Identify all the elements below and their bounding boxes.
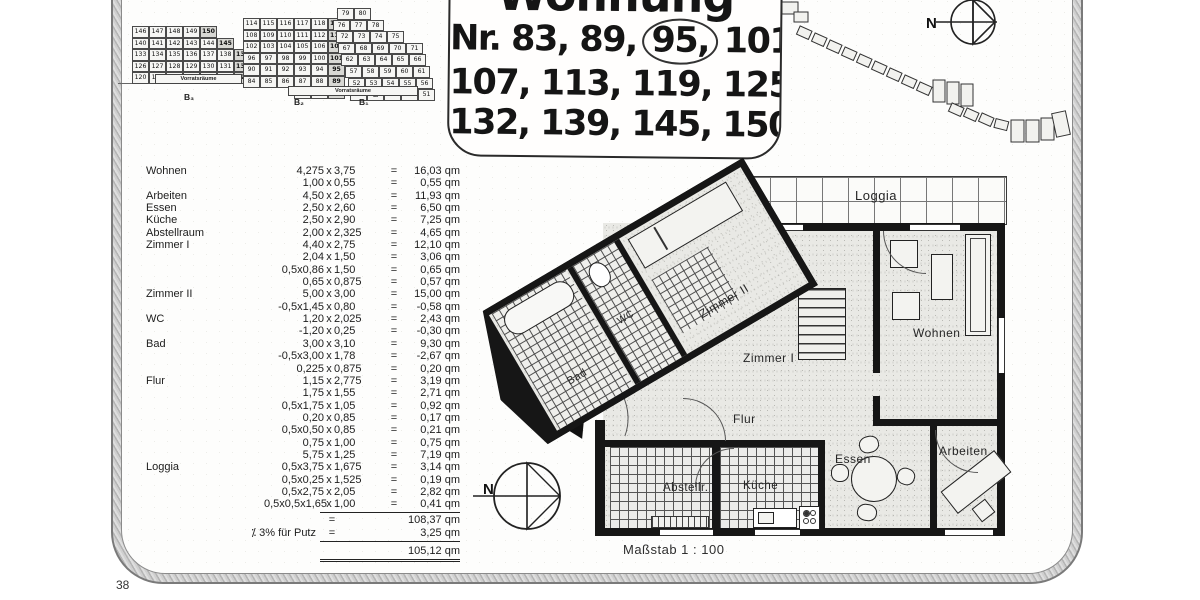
dimension-b: 2,75 <box>334 239 384 251</box>
unit-number-cell: 60 <box>396 66 413 78</box>
times-sign: x <box>324 474 334 486</box>
bed <box>628 182 743 269</box>
page-number: 38 <box>116 578 129 592</box>
label-loggia: Loggia <box>855 188 897 203</box>
times-sign: x <box>324 461 334 473</box>
dimension-b: 1,55 <box>334 387 384 399</box>
measurement-row: 0,75 x 1,00 = 0,75 qm <box>146 437 460 449</box>
unit-number-cell: 109 <box>260 30 277 42</box>
equals-sign: = <box>384 227 404 239</box>
unit-number-cell: 136 <box>183 49 200 61</box>
dimension-b: 3,75 <box>334 165 384 177</box>
times-sign: x <box>324 338 334 350</box>
dimension-a: 0,20 <box>264 412 324 424</box>
measurement-row: 0,5x1,75 x 1,05 = 0,92 qm <box>146 400 460 412</box>
measurement-row: 1,00 x 0,55 = 0,55 qm <box>146 177 460 189</box>
dimension-b: 2,05 <box>334 486 384 498</box>
area-value: 0,20 qm <box>404 363 460 375</box>
unit-number-cell: 129 <box>183 61 200 73</box>
area-value: 0,19 qm <box>404 474 460 486</box>
unit-number-cell: 116 <box>277 18 294 30</box>
measurement-row: Küche 2,50 x 2,90 = 7,25 qm <box>146 214 460 226</box>
measurement-row: Wohnen 4,275 x 3,75 = 16,03 qm <box>146 165 460 177</box>
unit-number-cell: 141 <box>149 38 166 50</box>
dimension-b: 2,65 <box>334 190 384 202</box>
times-sign: x <box>324 350 334 362</box>
unit-number-cell: 69 <box>372 43 389 55</box>
measurement-row: Bad 3,00 x 3,10 = 9,30 qm <box>146 338 460 350</box>
unit-number-cell: 102 <box>243 41 260 53</box>
dimension-a: 2,00 <box>264 227 324 239</box>
dimension-b: 2,60 <box>334 202 384 214</box>
label-essen: Essen <box>835 452 871 466</box>
armchair <box>892 292 920 320</box>
unit-number-cell: 72 <box>336 31 353 43</box>
unit-number-cell: 58 <box>362 66 379 78</box>
equals-sign: = <box>384 424 404 436</box>
stove-burner <box>810 518 816 524</box>
shelf-inner <box>970 238 986 332</box>
unit-number-cell: 130 <box>200 61 217 73</box>
measurement-row: 0,225 x 0,875 = 0,20 qm <box>146 363 460 375</box>
unit-number-cell: 126 <box>132 61 149 73</box>
room-label: Wohnen <box>146 165 264 177</box>
window-bottom-1 <box>660 529 713 536</box>
stove-burner <box>803 510 810 517</box>
label-abstell: Abstellr. <box>663 482 708 494</box>
dimension-b: 1,525 <box>334 474 384 486</box>
equals-sign: = <box>384 400 404 412</box>
window-bottom-2 <box>755 529 800 536</box>
measurement-row: 5,75 x 1,25 = 7,19 qm <box>146 449 460 461</box>
room-label: Flur <box>146 375 264 387</box>
times-sign: x <box>324 437 334 449</box>
north-label-top: N <box>926 15 937 32</box>
unit-number-cell: 117 <box>294 18 311 30</box>
unit-number-cell: 63 <box>358 54 375 66</box>
times-sign: x <box>324 214 334 226</box>
title-line-1: Nr. 83, 89, 95, 101, <box>450 16 780 65</box>
equals-sign: = <box>384 461 404 473</box>
room-label <box>146 387 264 399</box>
block-label-b1: B₁ <box>359 97 369 107</box>
unit-number-cell: 144 <box>200 38 217 50</box>
times-sign: x <box>324 190 334 202</box>
area-value: 16,03 qm <box>404 165 460 177</box>
stove-burner <box>803 518 809 524</box>
plaster-deduction-value: 3,25 qm <box>344 527 460 539</box>
times-sign: x <box>324 375 334 387</box>
room-label: Zimmer II <box>146 288 264 300</box>
times-sign: x <box>324 412 334 424</box>
unit-number-cell: 118 <box>311 18 328 30</box>
window-right <box>998 318 1005 373</box>
area-value: 2,43 qm <box>404 313 460 325</box>
siteplan-row: 96979899100101 <box>243 53 345 65</box>
equals-sign: = <box>320 514 344 526</box>
measurement-row: 1,75 x 1,55 = 2,71 qm <box>146 387 460 399</box>
room-label: Arbeiten <box>146 190 264 202</box>
label-zimmer1: Zimmer I <box>743 351 794 365</box>
unit-number-cell: 59 <box>379 66 396 78</box>
area-value: 2,71 qm <box>404 387 460 399</box>
room-label <box>146 474 264 486</box>
window-top-2 <box>910 224 960 231</box>
room-label <box>146 251 264 263</box>
measurement-row: Loggia 0,5x3,75 x 1,675 = 3,14 qm <box>146 461 460 473</box>
dimension-a: 3,00 <box>264 338 324 350</box>
storage-rooms-strip-left: Vorratsräume <box>155 74 242 84</box>
room-label: Zimmer I <box>146 239 264 251</box>
unit-number-cell: 85 <box>260 76 277 88</box>
unit-number-cell: 146 <box>132 26 149 38</box>
room-label <box>146 276 264 288</box>
staircase <box>798 288 846 360</box>
equals-sign: = <box>384 363 404 375</box>
unit-number-cell: 110 <box>277 30 294 42</box>
times-sign: x <box>324 325 334 337</box>
area-value: 7,19 qm <box>404 449 460 461</box>
unit-number-cell: 140 <box>132 38 149 50</box>
measurement-rows: Wohnen 4,275 x 3,75 = 16,03 qm 1,00 x 0,… <box>146 165 460 511</box>
compass-north-top <box>936 0 997 44</box>
measurement-row: Zimmer I 4,40 x 2,75 = 12,10 qm <box>146 239 460 251</box>
dimension-b: 1,675 <box>334 461 384 473</box>
dimension-a: 5,00 <box>264 288 324 300</box>
label-kueche: Küche <box>743 480 778 492</box>
dimension-a: 0,5x0,50 <box>264 424 324 436</box>
unit-number-cell: 147 <box>149 26 166 38</box>
dimension-b: 2,90 <box>334 214 384 226</box>
unit-number-cell: 133 <box>132 49 149 61</box>
dimension-a: 1,15 <box>264 375 324 387</box>
dimension-a: 5,75 <box>264 449 324 461</box>
unit-number-cell: 66 <box>409 54 426 66</box>
unit-number-cell: 127 <box>149 61 166 73</box>
unit-number-cell: 120 <box>132 72 149 84</box>
dimension-a: -1,20 <box>264 325 324 337</box>
siteplan-row: 6768697071 <box>338 43 435 55</box>
dimension-a: 0,5x2,75 <box>264 486 324 498</box>
siteplan-row: 126127128129130131132 <box>132 61 251 73</box>
equals-sign: = <box>320 527 344 539</box>
unit-number-cell: 93 <box>294 64 311 76</box>
window-bottom-3 <box>945 529 993 536</box>
floor-plan: Loggia <box>455 168 1015 568</box>
dimension-a: -0,5x3,00 <box>264 350 324 362</box>
subtotal-value: 108,37 qm <box>344 514 460 526</box>
kitchen-sink-basin <box>758 512 774 524</box>
unit-number-cell: 137 <box>200 49 217 61</box>
equals-sign: = <box>384 325 404 337</box>
block-label-b2: B₂ <box>294 97 304 107</box>
measurement-row: Flur 1,15 x 2,775 = 3,19 qm <box>146 375 460 387</box>
unit-number-cell: 97 <box>260 53 277 65</box>
dimension-b: 0,25 <box>334 325 384 337</box>
measurement-row: -0,5x1,45 x 0,80 = -0,58 qm <box>146 301 460 313</box>
times-sign: x <box>324 227 334 239</box>
times-sign: x <box>324 313 334 325</box>
equals-sign: = <box>384 486 404 498</box>
dimension-b: 0,85 <box>334 424 384 436</box>
dimension-a: 2,04 <box>264 251 324 263</box>
equals-sign: = <box>384 190 404 202</box>
dimension-b: 1,78 <box>334 350 384 362</box>
unit-number-cell: 111 <box>294 30 311 42</box>
scanned-brochure-page: 38 146147148149150 140141142143144145 13… <box>0 0 1200 600</box>
dimension-b: 0,875 <box>334 276 384 288</box>
measurement-row: 0,5x0,50 x 0,85 = 0,21 qm <box>146 424 460 436</box>
area-value: 0,55 qm <box>404 177 460 189</box>
dimension-a: 0,5x0,25 <box>264 474 324 486</box>
dimension-a: 2,50 <box>264 202 324 214</box>
dimension-b: 1,25 <box>334 449 384 461</box>
room-label <box>146 412 264 424</box>
block-label-b3: B₃ <box>184 92 194 102</box>
total-row: 105,12 qm <box>146 543 460 562</box>
equals-sign: = <box>384 288 404 300</box>
siteplan-row: 102103104105106107 <box>243 41 345 53</box>
room-label: Loggia <box>146 461 264 473</box>
unit-number-cell: 70 <box>389 43 406 55</box>
unit-number-cell: 108 <box>243 30 260 42</box>
equals-sign: = <box>384 301 404 313</box>
dimension-b: 0,875 <box>334 363 384 375</box>
times-sign: x <box>324 165 334 177</box>
dimension-a: 0,5x3,75 <box>264 461 324 473</box>
unit-number-cell: 57 <box>345 66 362 78</box>
equals-sign: = <box>384 202 404 214</box>
unit-number-cell: 90 <box>243 64 260 76</box>
measurement-row: 0,65 x 0,875 = 0,57 qm <box>146 276 460 288</box>
equals-sign: = <box>384 449 404 461</box>
unit-number-cell: 149 <box>183 26 200 38</box>
measurement-row: Essen 2,50 x 2,60 = 6,50 qm <box>146 202 460 214</box>
unit-number-cell: 76 <box>333 20 350 32</box>
unit-number-cell: 106 <box>311 41 328 53</box>
circled-apartment-number: 95, <box>642 18 718 65</box>
room-label <box>146 325 264 337</box>
unit-number-cell: 99 <box>294 53 311 65</box>
measurement-row: WC 1,20 x 2,025 = 2,43 qm <box>146 313 460 325</box>
unit-number-cell: 51 <box>418 89 435 101</box>
dining-chair <box>831 464 849 482</box>
siteplan-row: 72737475 <box>336 31 435 43</box>
unit-number-cell: 79 <box>337 8 354 20</box>
unit-number-cell: 56 <box>416 78 433 90</box>
unit-number-cell: 62 <box>341 54 358 66</box>
equals-sign: = <box>384 214 404 226</box>
dimension-b: 3,00 <box>334 288 384 300</box>
dimension-a: 0,65 <box>264 276 324 288</box>
dimension-a: 1,75 <box>264 387 324 399</box>
room-label: Bad <box>146 338 264 350</box>
siteplan-row: 909192939495 <box>243 64 345 76</box>
times-sign: x <box>324 239 334 251</box>
times-sign: x <box>324 276 334 288</box>
room-label: Küche <box>146 214 264 226</box>
unit-number-cell: 114 <box>243 18 260 30</box>
times-sign: x <box>324 498 334 510</box>
dimension-a: 0,5x0,86 <box>264 264 324 276</box>
times-sign: x <box>324 301 334 313</box>
unit-number-cell: 128 <box>166 61 183 73</box>
site-overview-map: N <box>780 0 1080 152</box>
times-sign: x <box>324 264 334 276</box>
unit-number-cell: 64 <box>375 54 392 66</box>
equals-sign: = <box>384 165 404 177</box>
measurement-row: 0,5x0,25 x 1,525 = 0,19 qm <box>146 474 460 486</box>
times-sign: x <box>324 486 334 498</box>
area-value: -0,30 qm <box>404 325 460 337</box>
title-line1-post: 101, <box>713 21 783 62</box>
times-sign: x <box>324 449 334 461</box>
measurement-row: 0,5x0,86 x 1,50 = 0,65 qm <box>146 264 460 276</box>
unit-number-cell: 74 <box>370 31 387 43</box>
unit-number-cell: 131 <box>217 61 234 73</box>
wall-left-lower <box>595 420 605 536</box>
unit-number-cell: 145 <box>217 38 234 50</box>
dimension-b: 1,50 <box>334 251 384 263</box>
equals-sign: = <box>384 412 404 424</box>
siteplan-row: 6263646566 <box>341 54 435 66</box>
siteplan-row: 767778 <box>333 20 435 32</box>
unit-number-cell: 115 <box>260 18 277 30</box>
measurement-row: Abstellraum 2,00 x 2,325 = 4,65 qm <box>146 227 460 239</box>
measurement-row: 0,5x0,5x1,65 x 1,00 = 0,41 qm <box>146 498 460 510</box>
equals-sign: = <box>384 313 404 325</box>
area-value: 3,14 qm <box>404 461 460 473</box>
unit-number-cell: 75 <box>387 31 404 43</box>
equals-sign: = <box>384 498 404 510</box>
area-value: 2,82 qm <box>404 486 460 498</box>
dimension-a: 2,50 <box>264 214 324 226</box>
area-value: 6,50 qm <box>404 202 460 214</box>
times-sign: x <box>324 177 334 189</box>
title-line-2: 107, 113, 119, 125, <box>449 62 779 105</box>
unit-number-cell: 80 <box>354 8 371 20</box>
dimension-b: 1,00 <box>334 437 384 449</box>
title-box: Wohnung Nr. 83, 89, 95, 101, 107, 113, 1… <box>447 0 783 160</box>
unit-number-cell: 135 <box>166 49 183 61</box>
area-value: -2,67 qm <box>404 350 460 362</box>
equals-sign: = <box>384 437 404 449</box>
unit-number-cell: 91 <box>260 64 277 76</box>
area-value: 0,92 qm <box>404 400 460 412</box>
unit-number-cell: 78 <box>367 20 384 32</box>
plaster-deduction-row: ⁒ 3% für Putz = 3,25 qm <box>146 527 460 541</box>
label-wohnen: Wohnen <box>913 326 960 340</box>
measurement-row: 0,20 x 0,85 = 0,17 qm <box>146 412 460 424</box>
dimension-a: 1,00 <box>264 177 324 189</box>
room-label <box>146 301 264 313</box>
area-value: 3,19 qm <box>404 375 460 387</box>
unit-number-cell: 100 <box>311 53 328 65</box>
area-value: 0,41 qm <box>404 498 460 510</box>
dimension-b: 2,775 <box>334 375 384 387</box>
subtotal-row: = 108,37 qm <box>146 512 460 527</box>
dimension-b: 0,85 <box>334 412 384 424</box>
wall-flur-bottom <box>603 440 825 447</box>
unit-number-cell: 143 <box>183 38 200 50</box>
times-sign: x <box>324 363 334 375</box>
siteplan-row: 7980 <box>337 8 435 20</box>
room-label <box>146 498 264 510</box>
equals-sign: = <box>384 239 404 251</box>
unit-number-cell: 61 <box>413 66 430 78</box>
equals-sign: = <box>384 251 404 263</box>
unit-number-cell: 142 <box>166 38 183 50</box>
unit-number-cell: 84 <box>243 76 260 88</box>
times-sign: x <box>324 387 334 399</box>
unit-number-cell: 68 <box>355 43 372 55</box>
dimension-a: 4,275 <box>264 165 324 177</box>
room-label <box>146 363 264 375</box>
dimension-a: 0,5x0,5x1,65 <box>264 498 324 510</box>
area-value: 0,57 qm <box>404 276 460 288</box>
room-label <box>146 350 264 362</box>
equals-sign: = <box>384 177 404 189</box>
measurement-row: -1,20 x 0,25 = -0,30 qm <box>146 325 460 337</box>
times-sign: x <box>324 251 334 263</box>
unit-number-cell: 103 <box>260 41 277 53</box>
area-value: 4,65 qm <box>404 227 460 239</box>
dimension-b: 2,325 <box>334 227 384 239</box>
area-value: 0,21 qm <box>404 424 460 436</box>
dimension-a: 0,5x1,75 <box>264 400 324 412</box>
unit-number-cell: 92 <box>277 64 294 76</box>
room-label <box>146 424 264 436</box>
area-value: 0,17 qm <box>404 412 460 424</box>
area-value: 3,06 qm <box>404 251 460 263</box>
area-value: 0,75 qm <box>404 437 460 449</box>
unit-number-cell: 104 <box>277 41 294 53</box>
times-sign: x <box>324 424 334 436</box>
wall-wohnen-bottom <box>880 419 1005 426</box>
stove-burner <box>810 510 816 516</box>
equals-sign: = <box>384 387 404 399</box>
dimension-b: 1,05 <box>334 400 384 412</box>
room-label: Essen <box>146 202 264 214</box>
north-label-bottom: N <box>483 481 494 498</box>
siteplan-row: 133134135136137138139 <box>132 49 251 61</box>
room-label: WC <box>146 313 264 325</box>
label-flur: Flur <box>733 412 756 426</box>
room-label <box>146 400 264 412</box>
room-label <box>146 264 264 276</box>
room-label <box>146 437 264 449</box>
unit-number-cell: 65 <box>392 54 409 66</box>
measurement-row: 0,5x2,75 x 2,05 = 2,82 qm <box>146 486 460 498</box>
room-label <box>146 449 264 461</box>
unit-number-cell: 150 <box>200 26 217 38</box>
wall-zimmer1-wohnen <box>873 223 880 373</box>
tv-cabinet <box>931 254 953 300</box>
dimension-b: 1,50 <box>334 264 384 276</box>
unit-number-cell: 94 <box>311 64 328 76</box>
unit-number-site-plan: 146147148149150 140141142143144145 13313… <box>122 4 432 114</box>
equals-sign: = <box>384 264 404 276</box>
area-value: -0,58 qm <box>404 301 460 313</box>
label-arbeiten: Arbeiten <box>939 444 988 458</box>
storage-rooms-strip-right: Vorratsräume <box>288 86 418 96</box>
measurements-table: Wohnen 4,275 x 3,75 = 16,03 qm 1,00 x 0,… <box>146 165 460 562</box>
scale-label: Maßstab 1 : 100 <box>623 542 724 557</box>
measurement-row: Arbeiten 4,50 x 2,65 = 11,93 qm <box>146 190 460 202</box>
dimension-a: -0,5x1,45 <box>264 301 324 313</box>
room-label <box>146 486 264 498</box>
dimension-b: 3,10 <box>334 338 384 350</box>
